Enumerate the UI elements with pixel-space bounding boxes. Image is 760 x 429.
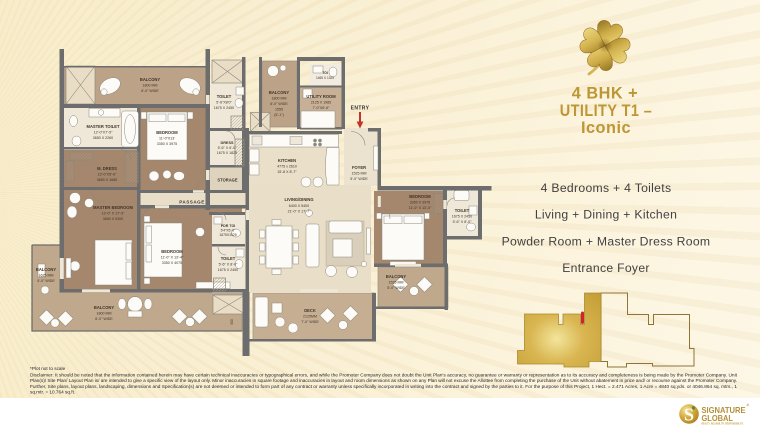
svg-text:BALCONY: BALCONY [36,267,57,272]
svg-text:TOI: TOI [322,71,328,75]
svg-text:12'-0" X 17'-5": 12'-0" X 17'-5" [102,212,125,216]
svg-text:4775 x 2610: 4775 x 2610 [277,165,297,169]
svg-text:5'-0" WIDE: 5'-0" WIDE [350,177,368,181]
svg-text:1555: 1555 [275,108,283,112]
svg-text:ENTRY: ENTRY [351,106,370,112]
svg-text:PDR TOI: PDR TOI [221,224,236,228]
svg-text:KITCHEN: KITCHEN [278,158,296,163]
svg-text:5'-0" WIDE: 5'-0" WIDE [37,279,55,283]
svg-text:1675 X 2450: 1675 X 2450 [218,268,238,272]
svg-text:6400 X 5400: 6400 X 5400 [289,204,309,208]
svg-text:UTILITY ROOM: UTILITY ROOM [306,94,336,99]
svg-text:DECK: DECK [304,308,316,313]
svg-text:1675X1525: 1675X1525 [219,233,236,237]
svg-text:sq.mtr. = 10.764 sq.ft.: sq.mtr. = 10.764 sq.ft. [30,389,75,394]
svg-text:1525 MM: 1525 MM [352,172,367,176]
svg-text:12'-0"X5'-6": 12'-0"X5'-6" [98,173,117,177]
svg-text:11'-0" X 13'-4": 11'-0" X 13'-4" [161,256,184,260]
svg-text:LIVING/DINING: LIVING/DINING [284,197,313,202]
svg-text:MASTER TOILET: MASTER TOILET [87,124,120,129]
svg-text:1800 MM: 1800 MM [97,312,112,316]
svg-text:3650 X 2260: 3650 X 2260 [93,136,113,140]
svg-text:3350 X 3975: 3350 X 3975 [157,142,177,146]
svg-text:1625 MM: 1625 MM [39,274,54,278]
svg-text:Disclaimer: It should be noted: Disclaimer: It should be noted that the … [30,373,738,378]
svg-text:BALCONY: BALCONY [94,305,115,310]
svg-text:5'-0" WIDE: 5'-0" WIDE [387,286,405,290]
svg-text:BALCONY: BALCONY [269,90,290,95]
svg-text:1675 X 2450: 1675 X 2450 [214,106,234,110]
svg-text:6'-0" WIDE: 6'-0" WIDE [95,317,113,321]
svg-text:1525 MM: 1525 MM [389,281,404,285]
svg-text:2125 X 1985: 2125 X 1985 [311,101,331,105]
svg-text:1675 X 1825: 1675 X 1825 [217,151,237,155]
svg-text:BALCONY: BALCONY [386,274,407,279]
svg-text:®: ® [747,404,750,408]
svg-text:Powder Room + Master Dress Roo: Powder Room + Master Dress Room [502,234,711,248]
svg-text:4 BHK +: 4 BHK + [572,84,638,102]
svg-text:900: 900 [230,319,234,325]
svg-text:BEDROOM: BEDROOM [156,130,178,135]
svg-text:5'4"X5'-0": 5'4"X5'-0" [221,229,236,233]
svg-text:Plan(s)/ Site Plan/ Layout Pla: Plan(s)/ Site Plan/ Layout Plan is/ are … [30,378,737,383]
svg-text:21'-0" X 17'-7": 21'-0" X 17'-7" [288,210,311,214]
svg-text:MASTER BEDROOM: MASTER BEDROOM [93,205,133,210]
svg-text:Iconic: Iconic [581,119,631,137]
svg-text:TOILET: TOILET [217,94,232,99]
svg-text:STORAGE: STORAGE [217,178,237,183]
svg-text:3350 X 3975: 3350 X 3975 [410,201,430,205]
svg-text:6'-0" WIDE: 6'-0" WIDE [141,89,159,93]
svg-text:TOILET: TOILET [455,208,470,213]
svg-text:REALTY. RELIABILITY. RESPONSIB: REALTY. RELIABILITY. RESPONSIBILITY. [702,422,744,425]
svg-text:UTILITY T1 –: UTILITY T1 – [560,102,653,120]
svg-text:4 Bedrooms + 4 Toilets: 4 Bedrooms + 4 Toilets [541,181,672,195]
svg-text:DRESS: DRESS [220,141,234,145]
svg-text:5'-6"X8'0": 5'-6"X8'0" [216,101,232,105]
svg-text:BEDROOM: BEDROOM [161,249,183,254]
svg-text:3350 X 4075: 3350 X 4075 [162,261,182,265]
svg-text:M. DRESS: M. DRESS [97,166,117,171]
svg-text:12'-0"X7'-5": 12'-0"X7'-5" [94,131,113,135]
svg-text:15'-8 X 8'-7": 15'-8 X 8'-7" [277,170,297,174]
svg-text:FOYER: FOYER [352,165,366,170]
svg-text:1465 X 1325: 1465 X 1325 [316,76,334,80]
svg-text:7'-0"X6'-6": 7'-0"X6'-6" [313,106,330,110]
svg-text:(5'-1"): (5'-1") [274,113,284,117]
svg-text:3650 X 5300: 3650 X 5300 [103,217,123,221]
svg-text:1800 MM: 1800 MM [143,84,158,88]
svg-text:BEDROOM: BEDROOM [409,194,431,199]
svg-text:GLOBAL: GLOBAL [702,414,734,423]
svg-text:Entrance Foyer: Entrance Foyer [562,261,650,275]
svg-text:1675 X 2450: 1675 X 2450 [452,215,472,219]
svg-text:2125MM: 2125MM [303,315,317,319]
svg-text:Further, Site plans, layout pl: Further, Site plans, layout plans, lands… [30,384,737,389]
svg-text:Living + Dining + Kitchen: Living + Dining + Kitchen [535,208,677,222]
svg-text:PASSAGE: PASSAGE [179,200,205,205]
svg-text:3650 X 1685: 3650 X 1685 [97,178,117,182]
svg-text:5'-6" X 8'-0": 5'-6" X 8'-0" [219,263,238,267]
svg-text:6'-0" WIDE: 6'-0" WIDE [270,102,288,106]
svg-text:5'-6" X 6'-0": 5'-6" X 6'-0" [218,146,237,150]
svg-text:11'-0" X 13'-0": 11'-0" X 13'-0" [409,206,432,210]
svg-text:*Plot not to scale: *Plot not to scale [30,366,66,371]
svg-text:1800 MM: 1800 MM [272,97,287,101]
svg-text:7'-0" WIDE: 7'-0" WIDE [301,320,319,324]
svg-text:BALCONY: BALCONY [140,77,161,82]
svg-text:5'-6" X 8'-0": 5'-6" X 8'-0" [453,220,472,224]
svg-text:11'-0"X13': 11'-0"X13' [159,137,175,141]
svg-text:TOILET: TOILET [221,256,236,261]
